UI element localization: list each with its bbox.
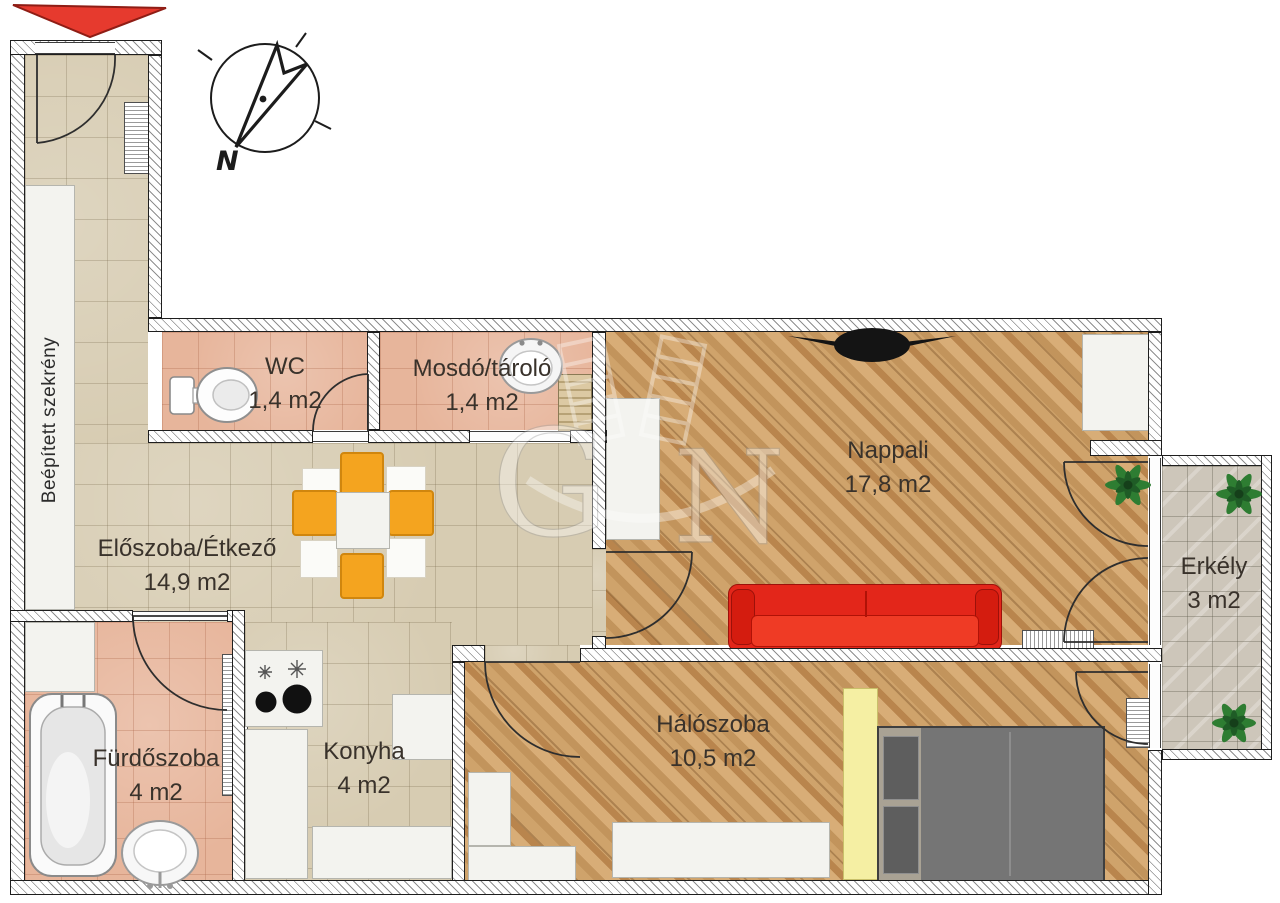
room-area: 14,9 m2 bbox=[98, 566, 277, 600]
balcony-railing bbox=[1162, 749, 1272, 760]
chair-mat bbox=[386, 538, 426, 578]
sofa-seat bbox=[751, 615, 979, 647]
wc-door-opening bbox=[313, 431, 368, 442]
room-label-wc: WC 1,4 m2 bbox=[248, 350, 321, 418]
room-area: 4 m2 bbox=[323, 769, 404, 803]
wardrobe-haloszoba bbox=[612, 822, 830, 878]
compass-icon: N bbox=[198, 33, 331, 177]
closet-label: Beépített szekrény bbox=[39, 337, 61, 503]
mosdo-opening bbox=[470, 431, 570, 442]
wall-segment bbox=[592, 332, 606, 549]
entrance-arrow-icon bbox=[13, 5, 166, 37]
room-area: 1,4 m2 bbox=[413, 386, 552, 420]
wall-segment bbox=[148, 318, 1162, 332]
room-area: 1,4 m2 bbox=[248, 384, 321, 418]
sofa-cushion-divider bbox=[865, 591, 867, 617]
radiator-haloszoba bbox=[1126, 698, 1150, 748]
kitchen-counter-bottom bbox=[312, 826, 452, 879]
balcony-railing bbox=[1162, 455, 1272, 466]
room-name: Mosdó/tároló bbox=[413, 352, 552, 386]
sofa bbox=[728, 584, 1002, 652]
wall-segment bbox=[367, 332, 380, 430]
room-name: Fürdőszoba bbox=[93, 742, 220, 776]
chair-mat bbox=[300, 540, 338, 578]
wall-segment bbox=[10, 40, 25, 895]
wall-segment bbox=[232, 610, 245, 895]
bed-pillow bbox=[883, 806, 919, 874]
floor-plan: N bbox=[0, 0, 1280, 903]
entrance-opening bbox=[35, 42, 115, 54]
room-area: 4 m2 bbox=[93, 776, 220, 810]
room-name: Konyha bbox=[323, 735, 404, 769]
dining-chair-east bbox=[388, 490, 434, 536]
balcony-railing bbox=[1261, 455, 1272, 760]
wall-segment bbox=[148, 430, 313, 443]
radiator-nappali bbox=[1022, 630, 1094, 650]
room-area: 17,8 m2 bbox=[845, 468, 932, 502]
compass-north-label: N bbox=[216, 146, 239, 177]
dining-table bbox=[336, 492, 390, 549]
dining-chair-west bbox=[292, 490, 338, 536]
dresser bbox=[468, 772, 511, 846]
room-name: Nappali bbox=[845, 434, 932, 468]
wall-segment bbox=[1090, 440, 1162, 456]
bed-blanket-crease bbox=[1009, 732, 1011, 876]
room-label-eloszoba: Előszoba/Étkező 14,9 m2 bbox=[98, 532, 277, 600]
room-label-konyha: Konyha 4 m2 bbox=[323, 735, 404, 803]
balcony-door-opening bbox=[1149, 664, 1161, 748]
wall-segment bbox=[1148, 332, 1162, 442]
doorway-haloszoba bbox=[485, 645, 580, 662]
doorway-nappali bbox=[592, 549, 606, 636]
room-name: WC bbox=[248, 350, 321, 384]
room-name: Hálószoba bbox=[656, 708, 769, 742]
room-label-nappali: Nappali 17,8 m2 bbox=[845, 434, 932, 502]
room-label-furdoszoba: Fürdőszoba 4 m2 bbox=[93, 742, 220, 810]
wardrobe-nappali-left bbox=[606, 398, 660, 540]
room-name: Erkély bbox=[1181, 550, 1248, 584]
dresser-low bbox=[468, 846, 576, 884]
room-name: Előszoba/Étkező bbox=[98, 532, 277, 566]
room-area: 10,5 m2 bbox=[656, 742, 769, 776]
wall-segment bbox=[1148, 750, 1162, 895]
wall-segment bbox=[10, 610, 133, 622]
balcony-door-opening bbox=[1149, 458, 1161, 645]
wall-segment bbox=[10, 880, 1162, 895]
wall-segment bbox=[452, 662, 465, 895]
washing-machine bbox=[25, 622, 95, 692]
radiator-entry bbox=[124, 102, 151, 174]
wall-segment bbox=[452, 645, 485, 662]
kitchen-counter-left bbox=[245, 729, 308, 879]
bathroom-door-opening bbox=[133, 611, 227, 621]
room-label-mosdo: Mosdó/tároló 1,4 m2 bbox=[413, 352, 552, 420]
room-label-erkely: Erkély 3 m2 bbox=[1181, 550, 1248, 618]
wall-segment bbox=[368, 430, 470, 443]
wardrobe-yellow bbox=[843, 688, 878, 880]
cooktop-unit bbox=[245, 650, 323, 727]
room-area: 3 m2 bbox=[1181, 584, 1248, 618]
double-bed bbox=[877, 726, 1105, 882]
dining-chair-south bbox=[340, 553, 384, 599]
bed-pillow bbox=[883, 736, 919, 800]
wall-segment bbox=[148, 55, 162, 318]
wall-segment bbox=[580, 648, 1162, 662]
wardrobe-nappali-right bbox=[1082, 334, 1150, 431]
storage-shelf bbox=[558, 374, 592, 432]
room-label-haloszoba: Hálószoba 10,5 m2 bbox=[656, 708, 769, 776]
